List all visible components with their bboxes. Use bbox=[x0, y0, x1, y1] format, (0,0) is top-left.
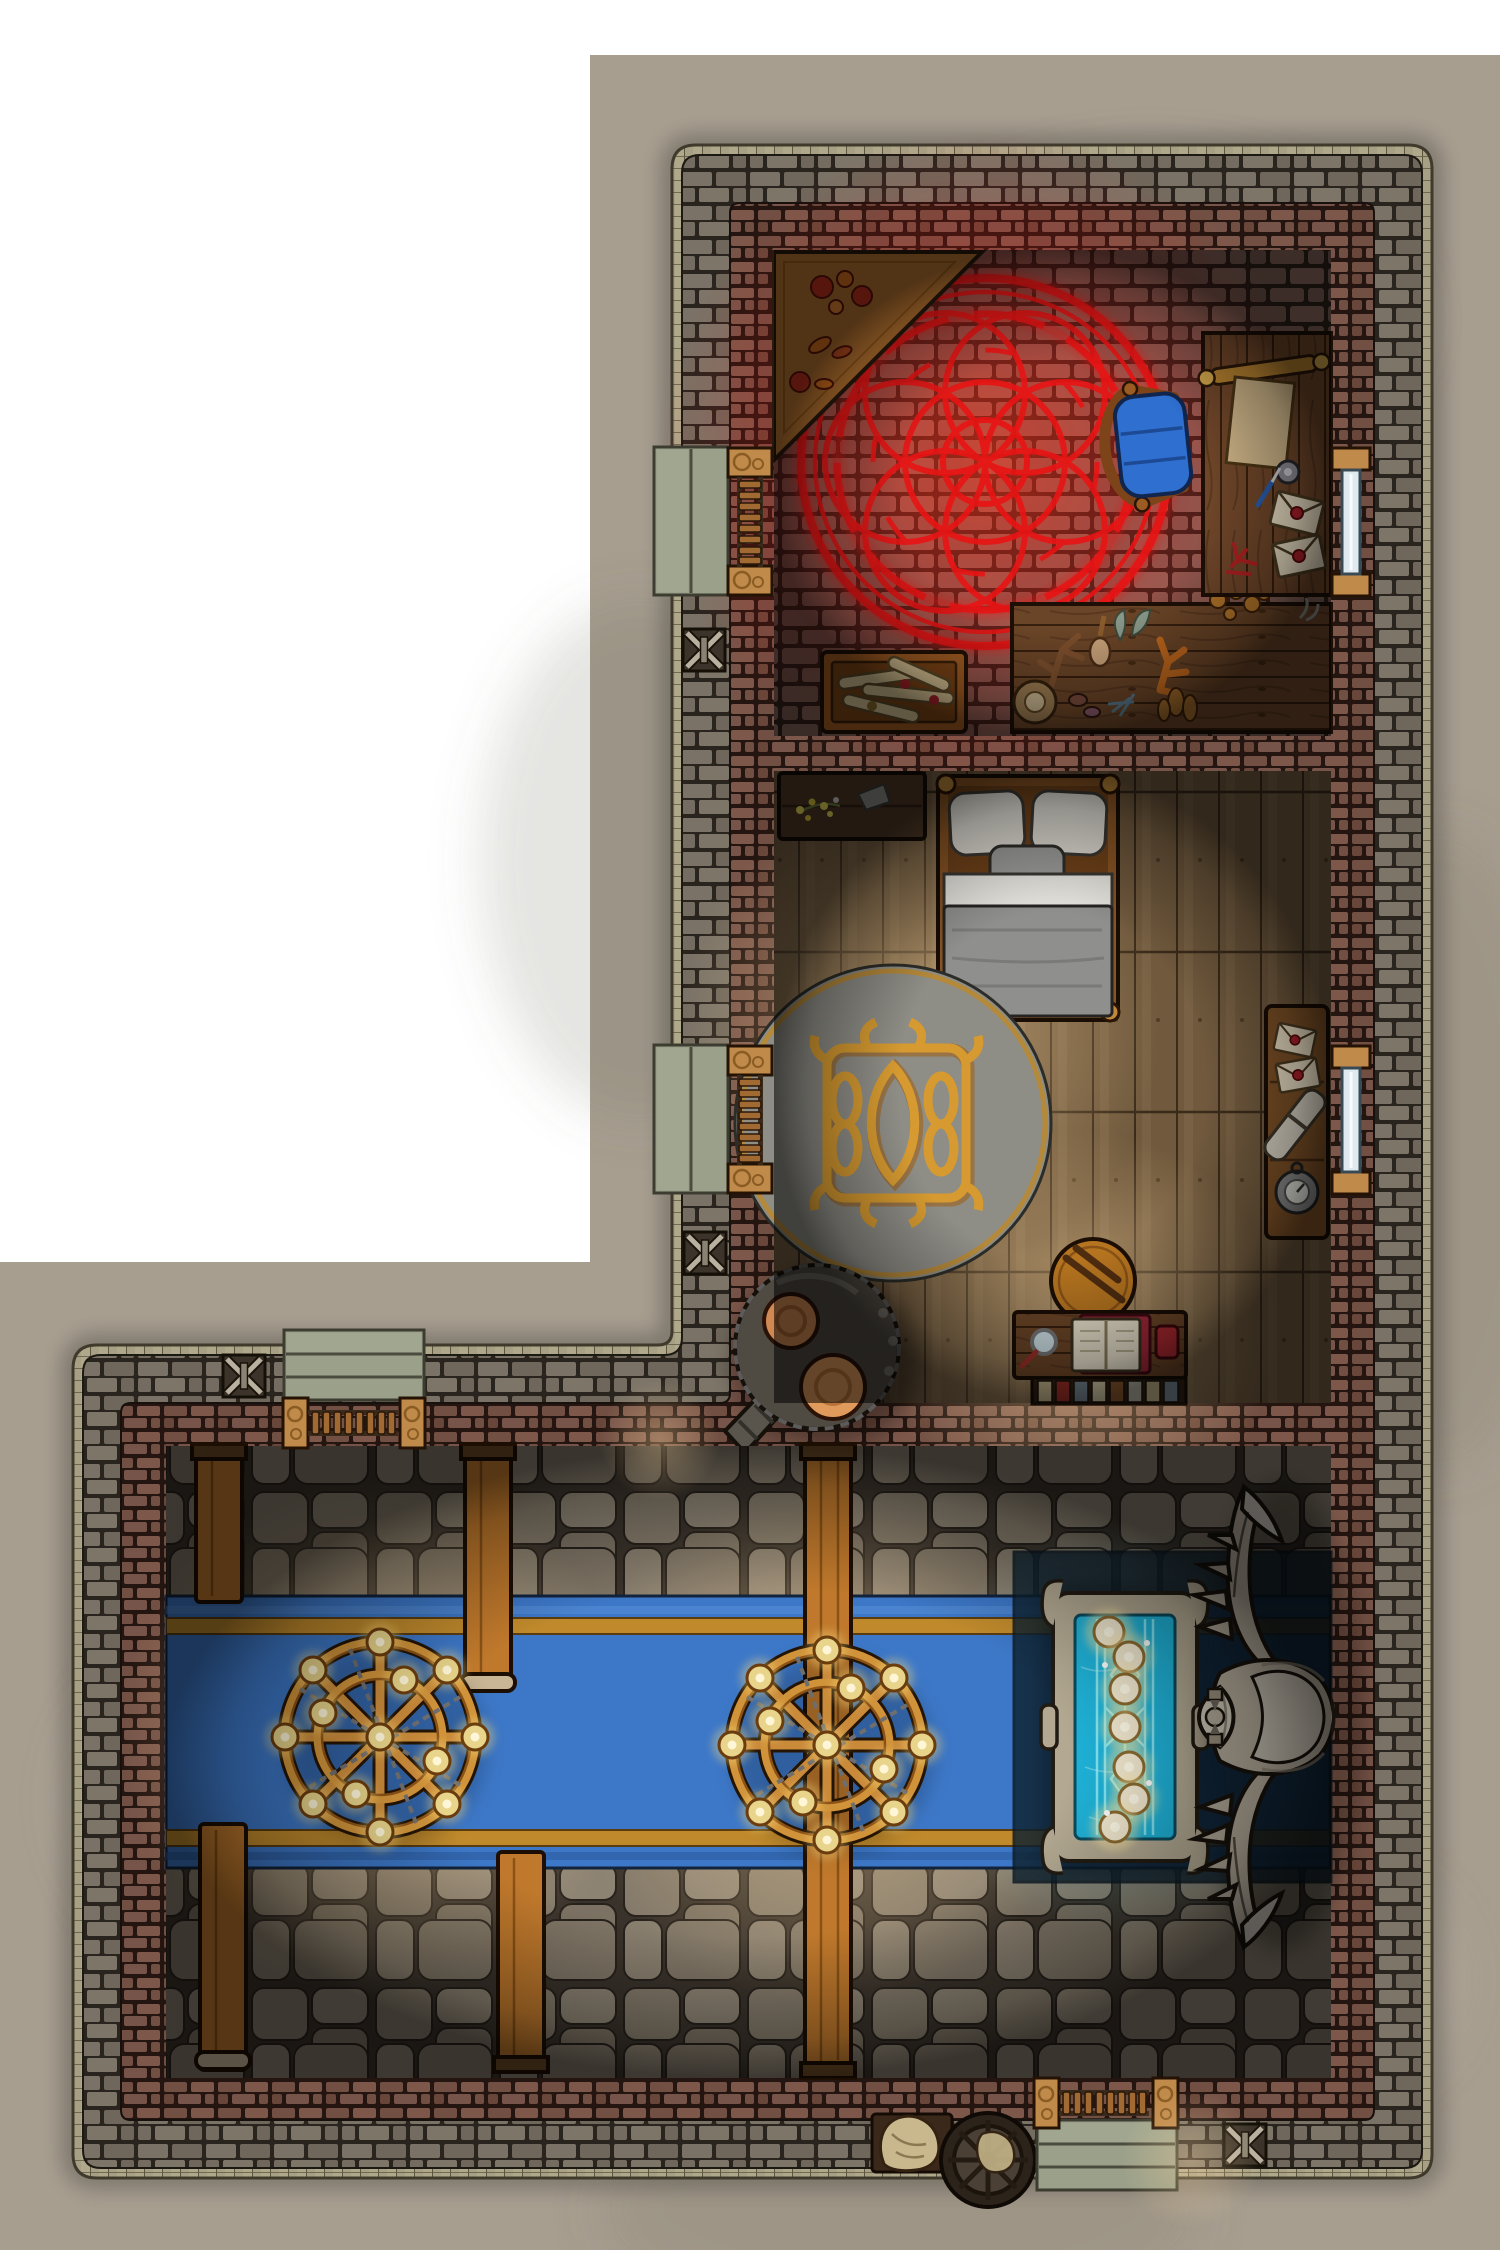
wall-anchor-icon bbox=[683, 629, 725, 671]
hall-vignette bbox=[166, 1446, 1331, 2078]
bedroom-vignette bbox=[774, 771, 1331, 1403]
cart-wheel bbox=[941, 2113, 1035, 2207]
wall-anchor-icon bbox=[684, 1232, 726, 1274]
ritual-vignette bbox=[774, 250, 1331, 736]
steps-west-upper bbox=[654, 447, 728, 595]
battlemap-svg bbox=[0, 0, 1500, 2250]
bedroom bbox=[680, 771, 1331, 1530]
steps-hall-north bbox=[284, 1330, 424, 1400]
wall-anchor-icon bbox=[223, 1355, 265, 1397]
steps-west-lower bbox=[654, 1045, 728, 1193]
battlemap-image bbox=[0, 0, 1500, 2250]
